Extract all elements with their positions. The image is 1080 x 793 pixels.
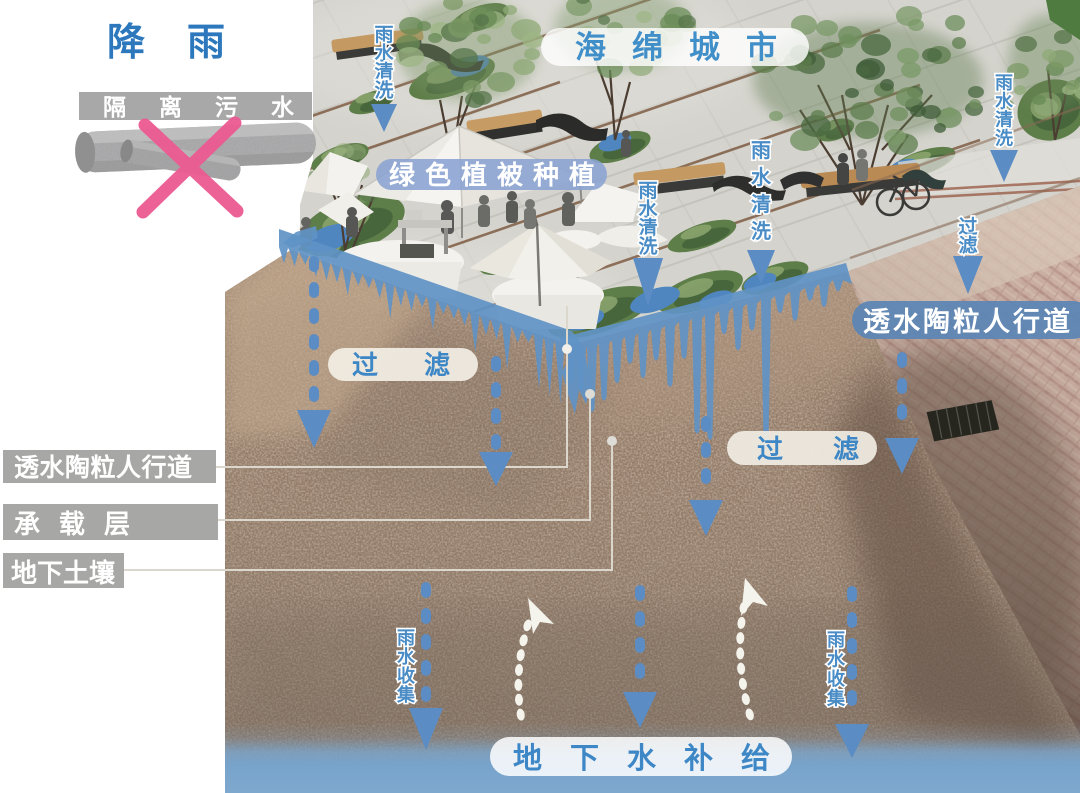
- svg-text:降雨: 降雨: [107, 22, 267, 64]
- svg-text:过滤: 过滤: [352, 350, 496, 380]
- svg-text:雨水清洗: 雨水清洗: [638, 181, 658, 258]
- svg-text:地下土壤: 地下土壤: [11, 558, 116, 588]
- svg-text:海绵城市: 海绵城市: [575, 30, 803, 65]
- svg-text:过滤: 过滤: [757, 434, 909, 464]
- svg-text:雨水清洗: 雨水清洗: [374, 25, 394, 102]
- svg-text:承载层: 承载层: [14, 509, 149, 539]
- svg-text:透水陶粒人行道: 透水陶粒人行道: [863, 306, 1073, 337]
- svg-text:透水陶粒人行道: 透水陶粒人行道: [14, 453, 193, 482]
- svg-text:地下水补给: 地下水补给: [513, 742, 798, 775]
- svg-text:绿色植被种植: 绿色植被种植: [389, 160, 605, 190]
- svg-text:过滤: 过滤: [958, 216, 977, 257]
- svg-text:雨水收集: 雨水收集: [826, 630, 846, 709]
- svg-text:雨水清洗: 雨水清洗: [995, 73, 1014, 149]
- svg-text:隔离污水: 隔离污水: [103, 94, 327, 120]
- svg-text:雨水收集: 雨水收集: [396, 628, 416, 705]
